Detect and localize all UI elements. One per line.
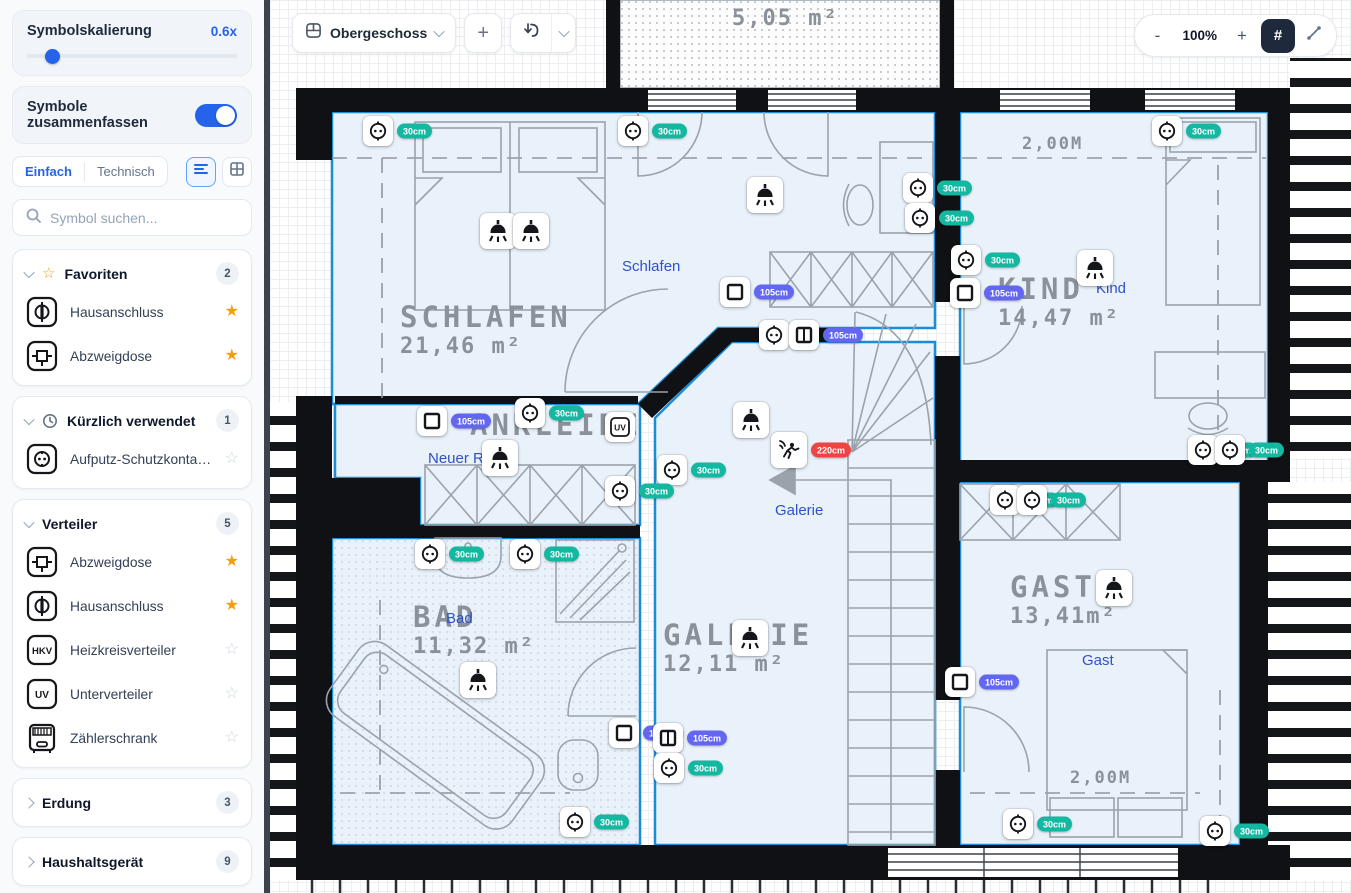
height-badge: 105cm xyxy=(754,285,794,300)
symbol-item-label: Abzweigdose xyxy=(70,349,152,364)
section-count-badge: 5 xyxy=(216,512,239,535)
section-haushaltsgeraet: Haushaltsgerät9 xyxy=(12,837,252,886)
socket-symbol[interactable]: 30cm xyxy=(1215,435,1245,465)
object-label: Gast xyxy=(1082,652,1114,669)
symbol-list-item[interactable]: Abzweigdose★ xyxy=(23,334,241,378)
list-view-button[interactable] xyxy=(186,157,216,187)
merge-symbols-card: Symbole zusammenfassen xyxy=(12,86,252,144)
lamp-symbol[interactable] xyxy=(747,177,783,213)
height-badge: 105cm xyxy=(451,414,491,429)
favorite-star-icon[interactable]: ★ xyxy=(225,304,239,320)
zoom-controls: - 100% + # xyxy=(1134,14,1337,57)
socket-symbol[interactable]: 30cm xyxy=(1152,116,1182,146)
symbol-item-label: Heizkreisverteiler xyxy=(70,643,176,658)
merge-symbols-label: Symbole zusammenfassen xyxy=(27,99,195,131)
lamp-symbol[interactable] xyxy=(1096,570,1132,606)
object-label: Schlafen xyxy=(622,258,680,275)
abzweigdose-symbol-icon xyxy=(25,545,59,579)
zoom-in-button[interactable]: + xyxy=(1227,21,1257,51)
abzweigdose-symbol-icon xyxy=(25,339,59,373)
import-floorplan-button[interactable] xyxy=(511,13,551,53)
section-title: Erdung xyxy=(42,795,91,811)
tab-technisch[interactable]: Technisch xyxy=(85,157,167,186)
mode-tabs: Einfach Technisch xyxy=(12,156,168,187)
chevron-down-icon xyxy=(23,266,34,277)
section-header-kuerzlich-verwendet[interactable]: Kürzlich verwendet1 xyxy=(23,404,241,437)
favorite-star-icon[interactable]: ☆ xyxy=(225,451,239,467)
symbol-list-item[interactable]: UVUnterverteiler☆ xyxy=(23,672,241,716)
floor-selector-button[interactable]: Obergeschoss xyxy=(292,13,456,53)
height-badge: 105cm xyxy=(687,731,727,746)
height-badge: 105cm xyxy=(979,675,1019,690)
height-badge: 30cm xyxy=(397,124,432,139)
svg-text:UV: UV xyxy=(35,690,49,701)
favorite-star-icon[interactable]: ☆ xyxy=(225,642,239,658)
symbol-list-item[interactable]: Hausanschluss★ xyxy=(23,584,241,628)
section-header-haushaltsgeraet[interactable]: Haushaltsgerät9 xyxy=(23,845,241,878)
lamp-symbol[interactable] xyxy=(732,620,768,656)
height-badge: 30cm xyxy=(691,463,726,478)
symbol-scaling-card: Symbolskalierung 0.6x xyxy=(12,10,252,76)
symbol-item-label: Unterverteiler xyxy=(70,687,153,702)
chevron-right-icon xyxy=(23,797,34,808)
socket-symbol[interactable]: 30cm xyxy=(1200,816,1230,846)
symbol-item-label: Abzweigdose xyxy=(70,555,152,570)
socket-symbol[interactable]: 30cm xyxy=(363,116,393,146)
height-badge: 30cm xyxy=(639,484,674,499)
socket-symbol[interactable] xyxy=(759,320,789,350)
section-title: Kürzlich verwendet xyxy=(67,413,195,429)
hausanschluss-symbol-icon xyxy=(25,295,59,329)
slider-thumb[interactable] xyxy=(45,49,60,64)
grid-toggle-button[interactable]: # xyxy=(1261,19,1295,53)
socket-symbol[interactable]: 30cm xyxy=(515,398,545,428)
motion-symbol[interactable]: 220cm xyxy=(771,432,807,468)
section-title: Favoriten xyxy=(64,266,127,282)
dimension-label: 2,00M xyxy=(1022,134,1083,154)
switch1-symbol[interactable]: 105cm xyxy=(720,277,750,307)
dimension-label: 2,00M xyxy=(1070,768,1131,788)
height-badge: 30cm xyxy=(449,547,484,562)
floorplan-icon xyxy=(305,22,322,44)
symbol-sections: ☆Favoriten2Hausanschluss★Abzweigdose★Kür… xyxy=(12,249,252,893)
switch1-symbol[interactable]: 105cm xyxy=(417,406,447,436)
chevron-down-icon xyxy=(558,26,569,37)
height-badge: 30cm xyxy=(1249,443,1284,458)
search-icon xyxy=(25,207,42,229)
socket-symbol-icon xyxy=(25,442,59,476)
lamp-symbol[interactable] xyxy=(513,213,549,249)
switch1-symbol[interactable]: 105cm xyxy=(950,278,980,308)
height-badge: 30cm xyxy=(985,253,1020,268)
chevron-down-icon xyxy=(23,516,34,527)
grid-toggle-label: # xyxy=(1274,27,1282,44)
lamp-symbol[interactable] xyxy=(480,213,516,249)
height-badge: 30cm xyxy=(1234,824,1269,839)
section-header-favoriten[interactable]: ☆Favoriten2 xyxy=(23,257,241,290)
symbol-list-item[interactable]: Aufputz-Schutzkontakt...☆ xyxy=(23,437,241,481)
floor-selector-label: Obergeschoss xyxy=(330,25,427,41)
height-badge: 30cm xyxy=(937,181,972,196)
zoom-in-label: + xyxy=(1237,26,1247,46)
section-header-verteiler[interactable]: Verteiler5 xyxy=(23,507,241,540)
socket-symbol[interactable]: 30cm xyxy=(510,539,540,569)
hausanschluss-symbol-icon xyxy=(25,589,59,623)
add-floor-label: + xyxy=(477,22,489,45)
hkv-symbol-icon: HKV xyxy=(25,633,59,667)
app-window: Symbolskalierung 0.6x Symbole zusammenfa… xyxy=(0,0,1351,893)
chevron-right-icon xyxy=(23,856,34,867)
socket-symbol[interactable]: 30cm xyxy=(903,173,933,203)
symbol-item-label: Hausanschluss xyxy=(70,599,164,614)
star-icon: ☆ xyxy=(42,266,55,281)
merge-symbols-toggle[interactable] xyxy=(195,104,237,127)
symbol-search xyxy=(12,199,252,236)
section-count-badge: 9 xyxy=(216,850,239,873)
favorite-star-icon[interactable]: ★ xyxy=(225,598,239,614)
switch1-symbol[interactable]: 105cm xyxy=(945,667,975,697)
favorite-star-icon[interactable]: ★ xyxy=(225,554,239,570)
socket-symbol[interactable]: 30cm xyxy=(905,203,935,233)
height-badge: 30cm xyxy=(1051,493,1086,508)
grid-view-icon xyxy=(228,160,246,183)
measure-button[interactable] xyxy=(1299,21,1329,51)
chevron-down-icon xyxy=(23,413,34,424)
section-count-badge: 1 xyxy=(216,409,239,432)
svg-text:UV: UV xyxy=(614,423,626,433)
height-badge: 105cm xyxy=(823,328,863,343)
socket-symbol[interactable]: 30cm xyxy=(1017,485,1047,515)
favorite-star-icon[interactable]: ☆ xyxy=(225,730,239,746)
import-icon xyxy=(522,21,541,45)
height-badge: 30cm xyxy=(1037,817,1072,832)
section-count-badge: 2 xyxy=(216,262,239,285)
socket-symbol[interactable]: 30cm xyxy=(415,539,445,569)
uv-symbol[interactable]: UV xyxy=(605,412,635,442)
measure-icon xyxy=(1305,24,1323,47)
section-title: Haushaltsgerät xyxy=(42,854,143,870)
section-erdung: Erdung3 xyxy=(12,778,252,827)
favorite-star-icon[interactable]: ★ xyxy=(225,348,239,364)
symbol-list-item[interactable]: Hausanschluss★ xyxy=(23,290,241,334)
lamp-symbol[interactable] xyxy=(482,440,518,476)
socket-symbol[interactable]: 30cm xyxy=(654,753,684,783)
uv-symbol-icon: UV xyxy=(25,677,59,711)
floorplan-canvas[interactable]: SCHLAFEN21,46 m²KIND14,47 m²ANKLEIDEBAD1… xyxy=(270,0,1351,893)
symbol-item-label: Zählerschrank xyxy=(70,731,157,746)
section-verteiler: Verteiler5Abzweigdose★Hausanschluss★HKVH… xyxy=(12,499,252,768)
symbol-item-label: Hausanschluss xyxy=(70,305,164,320)
tab-einfach[interactable]: Einfach xyxy=(13,157,84,186)
socket-symbol[interactable]: 30cm xyxy=(618,116,648,146)
favorite-star-icon[interactable]: ☆ xyxy=(225,686,239,702)
height-badge: 105cm xyxy=(984,286,1024,301)
zoom-out-button[interactable]: - xyxy=(1142,21,1172,51)
section-header-erdung[interactable]: Erdung3 xyxy=(23,786,241,819)
switch1-symbol[interactable]: 105cm xyxy=(609,718,639,748)
socket-symbol[interactable]: 30cm xyxy=(990,485,1020,515)
add-floor-button[interactable]: + xyxy=(464,13,502,53)
section-favoriten: ☆Favoriten2Hausanschluss★Abzweigdose★ xyxy=(12,249,252,386)
symbol-list-item[interactable]: HKVHeizkreisverteiler☆ xyxy=(23,628,241,672)
symbol-sidebar: Symbolskalierung 0.6x Symbole zusammenfa… xyxy=(0,0,264,893)
symbol-item-label: Aufputz-Schutzkontakt... xyxy=(70,452,214,467)
socket-symbol[interactable]: 30cm xyxy=(605,476,635,506)
socket-symbol[interactable]: 30cm xyxy=(657,455,687,485)
zoom-level: 100% xyxy=(1176,28,1223,43)
symbol-list-item[interactable]: Abzweigdose★ xyxy=(23,540,241,584)
list-view-icon xyxy=(192,160,210,183)
socket-symbol[interactable]: 30cm xyxy=(951,245,981,275)
height-badge: 30cm xyxy=(1186,124,1221,139)
symbol-list-item[interactable]: Zählerschrank☆ xyxy=(23,716,241,760)
object-label: Bad xyxy=(446,610,473,627)
height-badge: 30cm xyxy=(549,406,584,421)
symbol-scaling-label: Symbolskalierung xyxy=(27,23,152,39)
chevron-down-icon xyxy=(434,26,445,37)
height-badge: 30cm xyxy=(939,211,974,226)
height-badge: 30cm xyxy=(652,124,687,139)
switch2-symbol[interactable]: 105cm xyxy=(789,320,819,350)
zoom-out-label: - xyxy=(1155,26,1161,46)
switch2-symbol[interactable]: 105cm xyxy=(653,723,683,753)
lamp-symbol[interactable] xyxy=(733,402,769,438)
height-badge: 30cm xyxy=(688,761,723,776)
clock-icon xyxy=(42,413,58,429)
symbol-scaling-value: 0.6x xyxy=(211,24,237,39)
lamp-symbol[interactable] xyxy=(1077,250,1113,286)
grid-view-button[interactable] xyxy=(222,157,252,187)
symbol-scaling-slider[interactable] xyxy=(27,49,237,63)
import-floorplan-group xyxy=(510,13,576,53)
object-label: Galerie xyxy=(775,502,823,519)
toggle-knob xyxy=(216,106,235,125)
height-badge: 220cm xyxy=(811,443,851,458)
search-input[interactable] xyxy=(50,210,239,226)
section-title: Verteiler xyxy=(42,516,97,532)
section-count-badge: 3 xyxy=(216,791,239,814)
socket-symbol[interactable]: 30cm xyxy=(1188,435,1218,465)
zaehlerschrank-symbol-icon xyxy=(25,721,59,755)
socket-symbol[interactable]: 30cm xyxy=(560,807,590,837)
import-options-button[interactable] xyxy=(551,13,575,53)
socket-symbol[interactable]: 30cm xyxy=(1003,809,1033,839)
height-badge: 30cm xyxy=(544,547,579,562)
svg-text:HKV: HKV xyxy=(32,646,53,657)
height-badge: 30cm xyxy=(594,815,629,830)
lamp-symbol[interactable] xyxy=(460,662,496,698)
section-kuerzlich-verwendet: Kürzlich verwendet1Aufputz-Schutzkontakt… xyxy=(12,396,252,489)
